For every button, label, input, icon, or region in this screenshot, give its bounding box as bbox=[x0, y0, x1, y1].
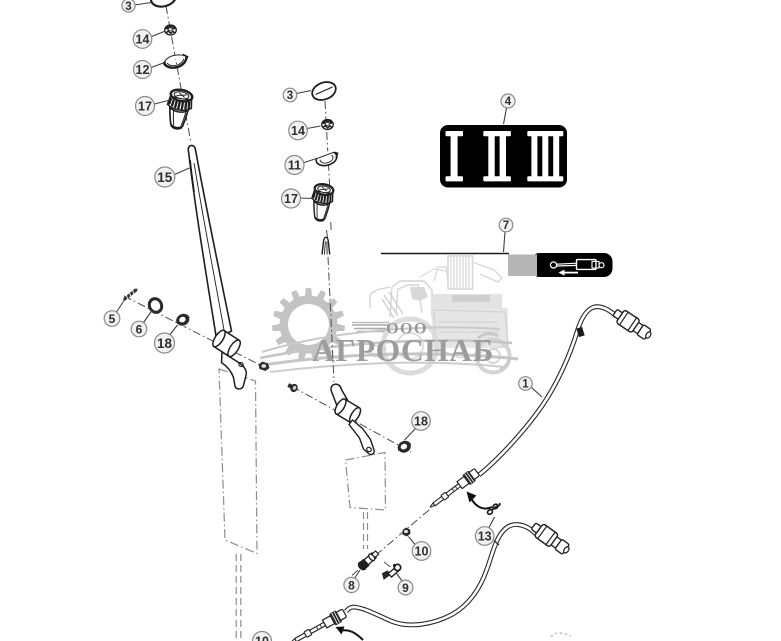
svg-text:11: 11 bbox=[288, 159, 301, 173]
svg-text:1: 1 bbox=[522, 379, 529, 391]
svg-text:5: 5 bbox=[109, 312, 116, 326]
svg-text:8: 8 bbox=[348, 578, 355, 592]
svg-text:14: 14 bbox=[291, 124, 305, 138]
svg-text:13: 13 bbox=[478, 530, 492, 544]
svg-text:АГРОСНАБ: АГРОСНАБ bbox=[312, 333, 494, 368]
svg-text:17: 17 bbox=[138, 100, 152, 114]
svg-text:10: 10 bbox=[415, 545, 429, 559]
svg-text:3: 3 bbox=[287, 90, 293, 102]
svg-text:18: 18 bbox=[157, 336, 173, 351]
svg-text:10: 10 bbox=[255, 635, 269, 641]
svg-text:7: 7 bbox=[503, 220, 509, 232]
svg-text:15: 15 bbox=[157, 170, 173, 185]
svg-text:9: 9 bbox=[402, 581, 409, 595]
svg-text:18: 18 bbox=[414, 415, 428, 429]
svg-text:6: 6 bbox=[136, 322, 143, 336]
svg-text:14: 14 bbox=[136, 33, 150, 47]
svg-text:3: 3 bbox=[125, 1, 131, 13]
svg-text:17: 17 bbox=[284, 192, 298, 206]
svg-text:4: 4 bbox=[505, 96, 512, 108]
svg-text:12: 12 bbox=[136, 63, 150, 77]
